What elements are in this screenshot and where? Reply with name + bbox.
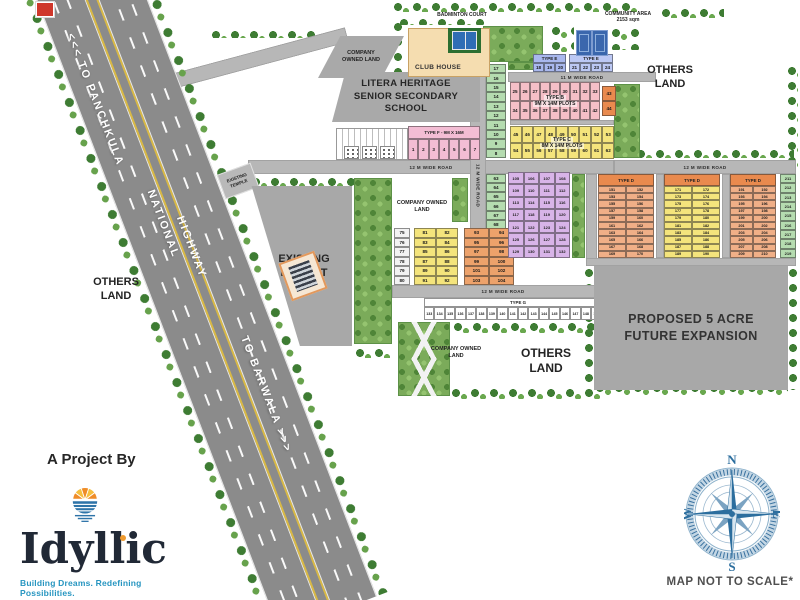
company-owned-land-top-label: COMPANY OWNED LAND <box>339 50 383 64</box>
court-markings <box>452 31 477 50</box>
plot-cell: 65 <box>486 192 506 201</box>
plot-cell: 91 <box>414 276 436 286</box>
plot-cell: 219 <box>780 249 796 258</box>
plot-cell: 146 <box>560 307 570 320</box>
plot-cell: 114 <box>524 197 540 209</box>
plot-cell: 155 <box>598 200 626 207</box>
plot-cell: 154 <box>626 193 654 200</box>
plot-grid: 1331341351361371381391401411421431441451… <box>424 307 612 320</box>
plot-cell: 197 <box>730 208 753 215</box>
road-label: 12 M WIDE ROAD <box>614 160 796 174</box>
plot-cell: 139 <box>487 307 497 320</box>
plot-cell: 148 <box>581 307 591 320</box>
tree-cluster <box>210 28 320 38</box>
plot-cell: 55 <box>522 143 534 160</box>
site-layout-map: <<< TO PANCHKULA NATIONAL HIGHWAY TO BAR… <box>0 0 800 600</box>
plot-grid: 454647484950515253545556575859606162 <box>510 126 614 159</box>
plot-cell: 164 <box>626 229 654 236</box>
plot-cell: 76 <box>394 238 410 248</box>
plot-cell: 90 <box>436 266 458 276</box>
plot-cell: 128 <box>555 233 571 245</box>
green-park <box>354 178 392 344</box>
plot-cell: 120 <box>555 209 571 221</box>
plot-cell: 175 <box>664 200 692 207</box>
plot-grid: 211212213214215216217218219 <box>780 174 796 258</box>
others-land-bottom-label: OTHERS LAND <box>508 346 584 376</box>
plot-grid: 21222324 <box>569 63 613 72</box>
plot-cell: 174 <box>692 193 720 200</box>
plot-cell: 207 <box>730 244 753 251</box>
plot-cell: 54 <box>510 143 522 160</box>
plot-cell: 86 <box>436 247 458 257</box>
plot-cell: 185 <box>664 236 692 243</box>
plot-cell: 50 <box>568 126 580 143</box>
plot-grid: 93949596979899100101102103104 <box>464 228 514 285</box>
plot-cell: 192 <box>753 186 776 193</box>
plot-cell: 112 <box>555 184 571 196</box>
plot-cell: 29 <box>550 82 560 101</box>
plot-cell: 79 <box>394 266 410 276</box>
plot-cell: 181 <box>664 222 692 229</box>
plot-cell: 137 <box>466 307 476 320</box>
plot-cell: 193 <box>730 193 753 200</box>
plot-cell: 47 <box>533 126 545 143</box>
plot-cell: 99 <box>464 257 489 267</box>
plots-east-2: TYPE D1711721731741751761771781791801811… <box>664 174 720 258</box>
internal-road: 11 M WIDE ROAD <box>508 72 656 82</box>
plot-cell: 3 <box>429 139 439 160</box>
plot-cell: 127 <box>539 233 555 245</box>
plot-cell: 43 <box>602 86 616 101</box>
plot-cell: 95 <box>464 238 489 248</box>
block-type-label: TYPE F - 9M X 16M <box>408 126 480 139</box>
company-owned-land-bottom-label: COMPANY OWNED LAND <box>428 346 484 360</box>
plot-cell: 64 <box>486 183 506 192</box>
plot-cell: 123 <box>539 221 555 233</box>
plot-cell: 39 <box>560 101 570 120</box>
plot-cell: 77 <box>394 247 410 257</box>
plot-cell: 8 <box>486 149 506 158</box>
plot-cell: 23 <box>591 63 602 72</box>
plot-cell: 27 <box>530 82 540 101</box>
plot-grid: 1511521531541551561571581591601611621631… <box>598 186 654 258</box>
school-name-line1: LITERA HERITAGE <box>361 78 450 91</box>
plot-cell: 62 <box>602 143 614 160</box>
plot-cell: 53 <box>602 126 614 143</box>
green-park <box>572 174 585 258</box>
plot-cell: 12 <box>486 111 506 120</box>
plot-cell: 122 <box>524 221 540 233</box>
plot-cell: 5 <box>449 139 459 160</box>
plot-cell: 142 <box>518 307 528 320</box>
plot-cell: 51 <box>579 126 591 143</box>
plot-cell: 187 <box>664 244 692 251</box>
plot-cell: 147 <box>570 307 580 320</box>
plot-cell: 67 <box>486 211 506 220</box>
plot-cell: 92 <box>436 276 458 286</box>
plot-cell: 117 <box>508 209 524 221</box>
plot-cell: 13 <box>486 102 506 111</box>
plot-grid: 757677787980 <box>394 228 410 285</box>
tree-cluster <box>616 147 794 158</box>
plot-cell: 81 <box>414 228 436 238</box>
plot-cell: 199 <box>730 215 753 222</box>
plot-cell: 88 <box>436 257 458 267</box>
plot-cell: 214 <box>780 202 796 211</box>
plot-cell: 125 <box>508 233 524 245</box>
plot-cell: 198 <box>753 208 776 215</box>
block-type-label: TYPE D <box>598 174 654 186</box>
plot-cell: 11 <box>486 120 506 129</box>
block-type-label: TYPE D <box>664 174 720 186</box>
plot-cell: 32 <box>580 82 590 101</box>
plot-cell: 138 <box>476 307 486 320</box>
plot-cell: 213 <box>780 193 796 202</box>
plot-cell: 186 <box>692 236 720 243</box>
plot-cell: 101 <box>464 266 489 276</box>
svg-text:S: S <box>728 559 735 572</box>
plot-cell: 14 <box>486 92 506 101</box>
plot-cell: 87 <box>414 257 436 267</box>
plot-cell: 180 <box>692 215 720 222</box>
plot-cell: 218 <box>780 239 796 248</box>
plot-cell: 126 <box>524 233 540 245</box>
plot-cell: 133 <box>424 307 434 320</box>
plot-cell: 206 <box>753 236 776 243</box>
plot-grid: 1711721731741751761771781791801811821831… <box>664 186 720 258</box>
plot-cell: 97 <box>464 247 489 257</box>
plot-cell: 130 <box>524 246 540 258</box>
plot-cell: 212 <box>780 183 796 192</box>
plot-cell: 134 <box>434 307 444 320</box>
plot-cell: 109 <box>508 184 524 196</box>
green-park <box>614 84 640 158</box>
plot-cell: 6 <box>459 139 469 160</box>
plots-east-1: TYPE D1511521531541551561571581591601611… <box>598 174 654 258</box>
plot-cell: 48 <box>545 126 557 143</box>
plot-cell: 182 <box>692 222 720 229</box>
plot-grid: 171615141312111098 <box>486 64 506 158</box>
existing-temple-label: EXISTING TEMPLE <box>224 171 252 191</box>
plot-cell: 157 <box>598 208 626 215</box>
project-by-text: A Project By <box>47 451 136 468</box>
plot-cell: 211 <box>780 174 796 183</box>
plot-cell: 49 <box>556 126 568 143</box>
plot-cell: 119 <box>539 209 555 221</box>
plot-cell: 136 <box>455 307 465 320</box>
svg-text:W: W <box>684 508 694 521</box>
plot-cell: 177 <box>664 208 692 215</box>
plot-grid: 181920 <box>533 63 566 72</box>
plot-cell: 160 <box>626 215 654 222</box>
plot-cell: 158 <box>626 208 654 215</box>
plot-cell: 46 <box>522 126 534 143</box>
badminton-court <box>448 28 481 53</box>
internal-road: 12 M WIDE ROAD <box>614 160 796 174</box>
badminton-court-label: BADMINTON COURT <box>436 12 488 18</box>
tree-cluster <box>550 24 574 52</box>
others-land-left-label: OTHERS LAND <box>88 276 144 304</box>
plot-cell: 7 <box>470 139 480 160</box>
tree-cluster <box>450 386 600 399</box>
plot-grid: 1234567 <box>408 139 480 160</box>
brand-name: Idyllic <box>20 524 167 573</box>
plot-grid: 1911921931941951961971981992002012022032… <box>730 186 776 258</box>
plot-cell: 124 <box>555 221 571 233</box>
plot-cell: 19 <box>544 63 555 72</box>
plot-cell: 103 <box>464 276 489 286</box>
company-owned-land-mid-label: COMPANY OWNED LAND <box>394 200 450 214</box>
plot-cell: 201 <box>730 222 753 229</box>
others-land-top-label: OTHERS LAND <box>644 64 696 92</box>
svg-text:N: N <box>727 452 737 467</box>
plot-cell: 131 <box>539 246 555 258</box>
community-area-line2: 2153 sqm <box>596 17 660 23</box>
plot-cell: 195 <box>730 200 753 207</box>
plot-cell: 215 <box>780 211 796 220</box>
plot-cell: 110 <box>524 184 540 196</box>
tree-cluster <box>660 6 724 18</box>
plot-cell: 113 <box>508 197 524 209</box>
plot-cell: 85 <box>414 247 436 257</box>
plot-grid: 252627282930313233343536373839404142 <box>510 82 600 120</box>
brand-tagline: Building Dreams. Redefining Possibilitie… <box>20 578 180 598</box>
plot-cell: 42 <box>590 101 600 120</box>
small-building <box>362 146 377 159</box>
plot-cell: 153 <box>598 193 626 200</box>
plots-type-b: 252627282930313233343536373839404142TYPE… <box>510 82 600 120</box>
plot-cell: 45 <box>510 126 522 143</box>
plot-cell: 1 <box>408 139 418 160</box>
tree-cluster <box>354 346 394 358</box>
plot-cell: 184 <box>692 229 720 236</box>
plot-cell: 28 <box>540 82 550 101</box>
plot-cell: 168 <box>626 244 654 251</box>
road-label: 12 M WIDE ROAD <box>392 285 614 298</box>
plot-cell: 41 <box>580 101 590 120</box>
plot-cell: 82 <box>436 228 458 238</box>
plot-cell: 145 <box>549 307 559 320</box>
plot-cell: 36 <box>530 101 540 120</box>
plot-cell: 172 <box>692 186 720 193</box>
plot-cell: 210 <box>753 251 776 258</box>
plot-cell: 170 <box>626 251 654 258</box>
plot-cell: 84 <box>436 238 458 248</box>
compass-rose-icon: N S E W <box>684 452 780 577</box>
plot-cell: 176 <box>692 200 720 207</box>
plots-green-north: 171615141312111098 <box>486 64 506 158</box>
internal-road: 12 M WIDE ROAD <box>392 285 614 298</box>
internal-road <box>722 174 730 258</box>
plot-cell: 151 <box>598 186 626 193</box>
small-building <box>344 146 359 159</box>
plots-orange-mid: 93949596979899100101102103104 <box>464 228 514 285</box>
plot-cell: 118 <box>524 209 540 221</box>
plot-cell: 108 <box>555 172 571 184</box>
plot-cell: 190 <box>692 251 720 258</box>
svg-text:E: E <box>770 510 780 519</box>
school-name-line2: SENIOR SECONDARY SCHOOL <box>332 91 480 117</box>
plot-cell: 161 <box>598 222 626 229</box>
plots-type-e2: TYPE E21222324 <box>569 54 613 72</box>
plot-cell: 18 <box>533 63 544 72</box>
plot-cell: 2 <box>418 139 428 160</box>
plot-cell: 203 <box>730 229 753 236</box>
plot-cell: 22 <box>580 63 591 72</box>
plot-cell: 107 <box>539 172 555 184</box>
sports-court <box>576 30 592 56</box>
plot-cell: 78 <box>394 257 410 267</box>
plot-cell: 200 <box>753 215 776 222</box>
plot-cell: 26 <box>520 82 530 101</box>
plot-cell: 44 <box>602 101 616 116</box>
plots-purple: 1051061071081091101111121131141151161171… <box>508 172 570 258</box>
plot-cell: 143 <box>528 307 538 320</box>
window-grid <box>288 260 318 292</box>
plot-cell: 205 <box>730 236 753 243</box>
plots-yellow-mid: 818283848586878889909192 <box>414 228 458 285</box>
plot-grid: 4344 <box>602 86 616 116</box>
plot-cell: 60 <box>579 143 591 160</box>
plot-cell: 188 <box>692 244 720 251</box>
internal-road <box>586 174 597 266</box>
plot-cell: 183 <box>664 229 692 236</box>
future-expansion-area: PROPOSED 5 ACRE FUTURE EXPANSION <box>594 266 788 390</box>
plot-cell: 58 <box>556 143 568 160</box>
club-house-label: CLUB HOUSE <box>415 64 461 71</box>
internal-road <box>586 258 796 266</box>
plot-cell: 204 <box>753 229 776 236</box>
plot-cell: 35 <box>520 101 530 120</box>
plot-cell: 105 <box>508 172 524 184</box>
plot-grid: 818283848586878889909192 <box>414 228 458 285</box>
green-park <box>452 178 468 222</box>
map-scale-note: MAP NOT TO SCALE* <box>660 576 800 588</box>
plot-cell: 59 <box>568 143 580 160</box>
plot-cell: 141 <box>508 307 518 320</box>
plot-cell: 202 <box>753 222 776 229</box>
plot-cell: 194 <box>753 193 776 200</box>
plot-cell: 24 <box>602 63 613 72</box>
plot-cell: 75 <box>394 228 410 238</box>
plot-cell: 166 <box>626 236 654 243</box>
plot-cell: 140 <box>497 307 507 320</box>
tree-cluster <box>610 26 640 50</box>
plot-cell: 56 <box>533 143 545 160</box>
plot-cell: 216 <box>780 221 796 230</box>
plot-cell: 33 <box>590 82 600 101</box>
plot-cell: 116 <box>555 197 571 209</box>
plot-cell: 165 <box>598 236 626 243</box>
plot-cell: 104 <box>489 276 514 286</box>
plot-cell: 208 <box>753 244 776 251</box>
plot-cell: 156 <box>626 200 654 207</box>
plot-cell: 57 <box>545 143 557 160</box>
plot-cell: 37 <box>540 101 550 120</box>
red-marker <box>36 2 54 17</box>
plot-cell: 63 <box>486 174 506 183</box>
plot-cell: 191 <box>730 186 753 193</box>
plot-cell: 209 <box>730 251 753 258</box>
plot-cell: 21 <box>569 63 580 72</box>
block-type-label: TYPE E <box>533 54 566 63</box>
tree-cluster <box>787 266 798 390</box>
plot-cell: 34 <box>510 101 520 120</box>
plot-cell: 80 <box>394 276 410 286</box>
plots-bottom-row: TYPE G1331341351361371381391401411421431… <box>424 298 612 320</box>
plot-cell: 4 <box>439 139 449 160</box>
plot-cell: 121 <box>508 221 524 233</box>
plot-cell: 20 <box>555 63 566 72</box>
plot-cell: 135 <box>445 307 455 320</box>
plot-cell: 106 <box>524 172 540 184</box>
plot-cell: 169 <box>598 251 626 258</box>
plot-cell: 173 <box>664 193 692 200</box>
plots-type-c: 454647484950515253545556575859606162TYPE… <box>510 126 614 159</box>
plot-cell: 83 <box>414 238 436 248</box>
plot-cell: 31 <box>570 82 580 101</box>
orange-dot <box>120 535 126 541</box>
internal-road <box>510 120 614 125</box>
plot-cell: 38 <box>550 101 560 120</box>
road-label: 11 M WIDE ROAD <box>508 72 656 82</box>
expansion-label-line2: FUTURE EXPANSION <box>624 328 757 346</box>
plot-cell: 10 <box>486 130 506 139</box>
plot-cell: 152 <box>626 186 654 193</box>
community-area-label: COMMUNITY AREA 2153 sqm <box>596 11 660 24</box>
plot-cell: 30 <box>560 82 570 101</box>
plot-cell: 178 <box>692 208 720 215</box>
plots-orange-pair: 4344 <box>602 86 616 116</box>
plot-cell: 179 <box>664 215 692 222</box>
block-type-label: TYPE G <box>424 298 612 307</box>
plot-cell: 89 <box>414 266 436 276</box>
plot-cell: 217 <box>780 230 796 239</box>
plot-cell: 129 <box>508 246 524 258</box>
plot-cell: 144 <box>539 307 549 320</box>
school-area: LITERA HERITAGE SENIOR SECONDARY SCHOOL <box>332 72 480 122</box>
plot-cell: 196 <box>753 200 776 207</box>
plot-cell: 171 <box>664 186 692 193</box>
plots-green-east: 211212213214215216217218219 <box>780 174 796 258</box>
plot-cell: 61 <box>591 143 603 160</box>
plot-grid: 1051061071081091101111121131141151161171… <box>508 172 570 258</box>
plot-cell: 52 <box>591 126 603 143</box>
plot-cell: 93 <box>464 228 489 238</box>
plot-cell: 189 <box>664 251 692 258</box>
expansion-label-line1: PROPOSED 5 ACRE <box>628 311 754 329</box>
plot-cell: 115 <box>539 197 555 209</box>
plot-cell: 159 <box>598 215 626 222</box>
plots-east-3: TYPE D1911921931941951961971981992002012… <box>730 174 776 258</box>
plots-type-f: TYPE F - 9M X 16M1234567 <box>408 126 480 160</box>
plot-cell: 102 <box>489 266 514 276</box>
small-building <box>380 146 395 159</box>
plot-cell: 132 <box>555 246 571 258</box>
idyllic-wordmark: Idyllic <box>20 528 167 570</box>
plots-type-e1: TYPE E181920 <box>533 54 566 72</box>
plot-cell: 163 <box>598 229 626 236</box>
sports-court <box>592 30 608 56</box>
plot-cell: 25 <box>510 82 520 101</box>
block-type-label: TYPE D <box>730 174 776 186</box>
plot-cell: 15 <box>486 83 506 92</box>
plot-cell: 167 <box>598 244 626 251</box>
plot-cell: 162 <box>626 222 654 229</box>
plots-white-column: 757677787980 <box>394 228 410 285</box>
plot-cell: 66 <box>486 201 506 210</box>
plot-cell: 40 <box>570 101 580 120</box>
